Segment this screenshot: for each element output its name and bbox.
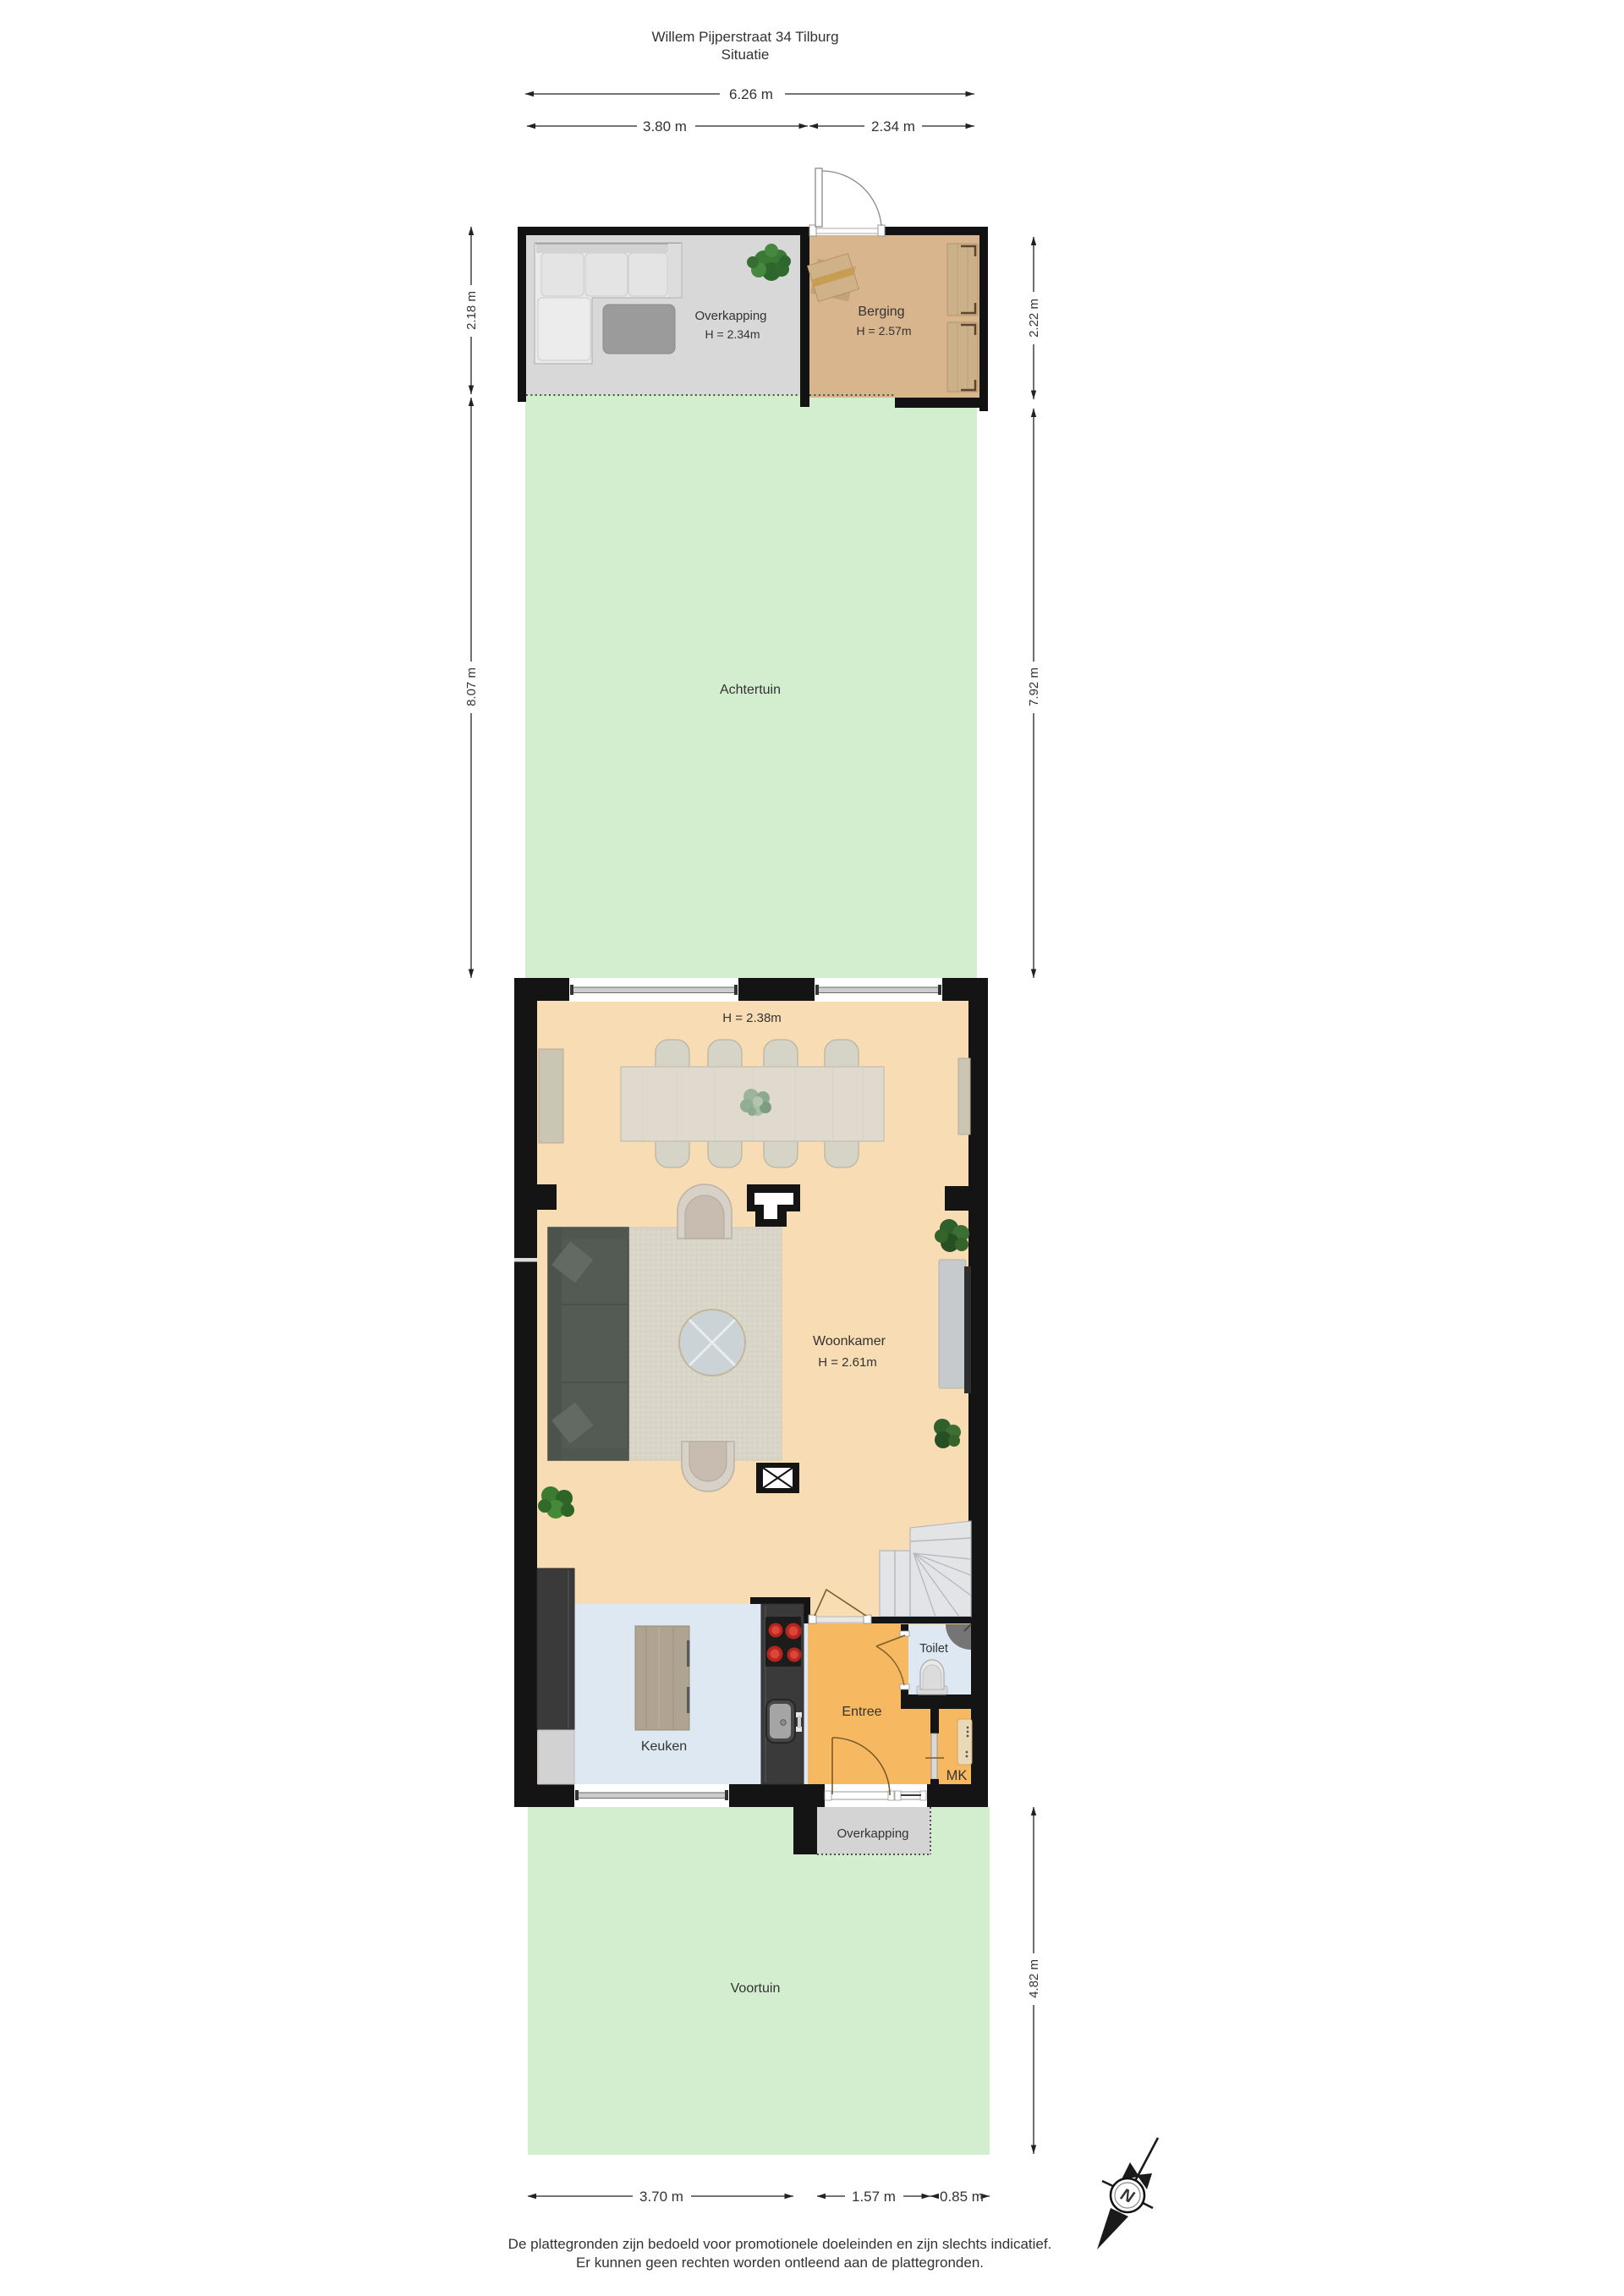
svg-text:Toilet: Toilet xyxy=(919,1642,948,1656)
svg-text:1.57 m: 1.57 m xyxy=(852,2189,896,2205)
svg-text:0.85 m: 0.85 m xyxy=(940,2189,984,2205)
svg-text:2.22 m: 2.22 m xyxy=(1027,299,1041,338)
svg-text:2.34 m: 2.34 m xyxy=(871,118,915,135)
svg-text:Overkapping: Overkapping xyxy=(694,309,766,323)
svg-text:De plattegronden zijn bedoeld: De plattegronden zijn bedoeld voor promo… xyxy=(508,2236,1052,2252)
svg-text:4.82 m: 4.82 m xyxy=(1027,1959,1041,1998)
svg-text:Achtertuin: Achtertuin xyxy=(720,683,781,697)
svg-text:H = 2.61m: H = 2.61m xyxy=(818,1355,877,1370)
svg-text:Overkapping: Overkapping xyxy=(837,1826,908,1841)
svg-text:H = 2.57m: H = 2.57m xyxy=(857,324,912,338)
svg-text:6.26 m: 6.26 m xyxy=(729,86,773,102)
svg-text:3.80 m: 3.80 m xyxy=(643,118,687,135)
svg-text:8.07 m: 8.07 m xyxy=(464,667,479,706)
svg-text:3.70 m: 3.70 m xyxy=(639,2189,683,2205)
svg-text:Willem Pijperstraat 34 Tilburg: Willem Pijperstraat 34 Tilburg xyxy=(651,29,838,45)
svg-text:7.92 m: 7.92 m xyxy=(1027,667,1041,706)
svg-text:Berging: Berging xyxy=(858,305,904,319)
svg-text:2.18 m: 2.18 m xyxy=(464,291,479,330)
svg-text:Situatie: Situatie xyxy=(721,47,770,63)
svg-text:Woonkamer: Woonkamer xyxy=(813,1334,886,1348)
svg-text:Entree: Entree xyxy=(842,1705,881,1719)
svg-text:MK: MK xyxy=(946,1768,968,1783)
svg-text:H = 2.38m: H = 2.38m xyxy=(722,1011,782,1025)
svg-text:Keuken: Keuken xyxy=(641,1739,687,1754)
svg-text:H = 2.34m: H = 2.34m xyxy=(705,327,760,341)
svg-text:Voortuin: Voortuin xyxy=(731,1981,781,1996)
svg-text:Er kunnen geen rechten worden: Er kunnen geen rechten worden ontleend a… xyxy=(576,2255,984,2271)
